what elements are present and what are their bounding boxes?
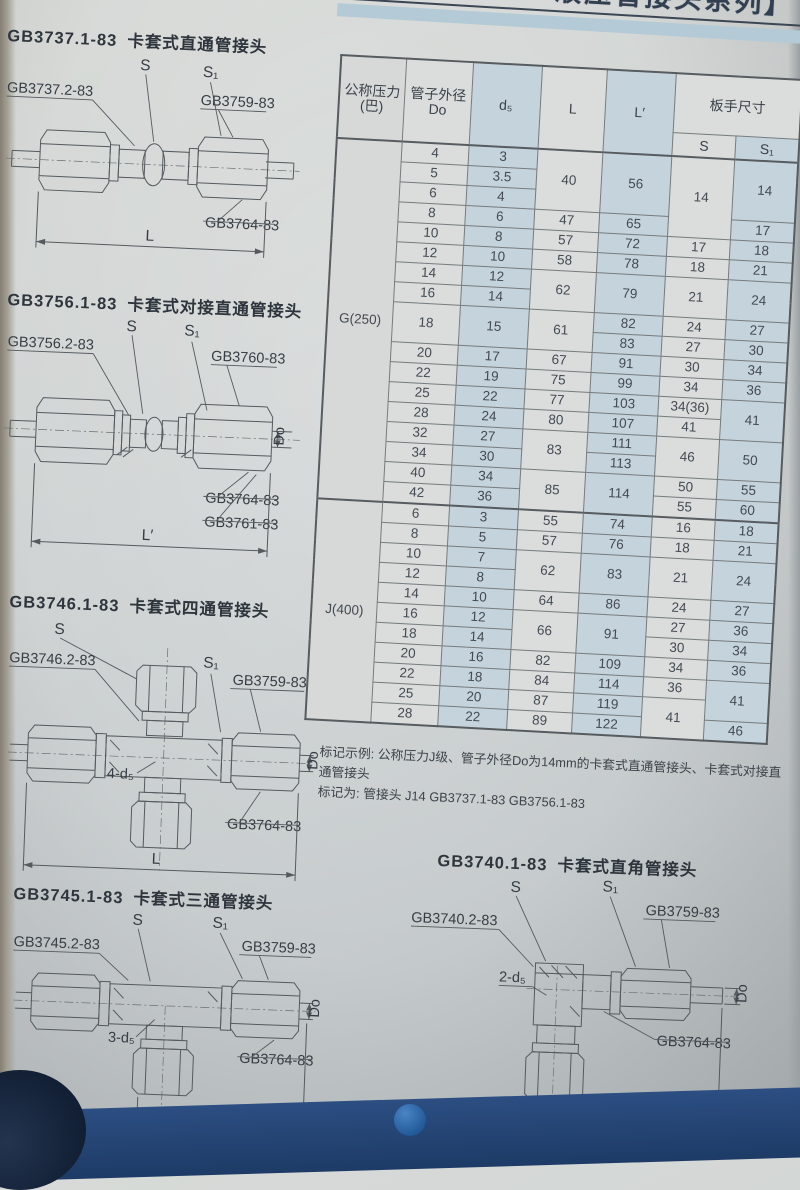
dim-s1-label: S₁ [212, 915, 228, 933]
diagram-cross-union: GB3746.1-83卡套式四通管接头 S GB3746.2-83 S₁ G [0, 588, 328, 890]
spec-cell: 21 [648, 557, 713, 600]
header-L: L [538, 66, 607, 152]
ferrule-part-label: GB3764-83 [239, 1051, 314, 1070]
dim-s1-label: S₁ [203, 654, 219, 672]
standard-code: GB3745.1-83 [13, 885, 124, 907]
spec-table-wrap: 公称压力(巴) 管子外径Do d₅ L L′ 板手尺寸 S S₁ G(250)4… [304, 54, 800, 745]
series-banner: 液压管接头系列】 [337, 0, 800, 44]
header-Lprime: L′ [603, 69, 676, 156]
bottom-blue-medallion [394, 1104, 426, 1136]
spec-cell: 61 [527, 309, 594, 352]
spec-cell: 22 [438, 706, 508, 730]
dim-do-label: Do [307, 999, 324, 1018]
straight-union-drawing: S S₁ GB3737.2-83 GB3759-83 GB3764-83 L [0, 46, 309, 279]
spec-cell: 24 [726, 280, 791, 323]
spec-cell: 14 [667, 156, 735, 240]
spec-cell: 83 [521, 429, 588, 472]
standard-code: GB3746.1-83 [9, 593, 120, 615]
dim-s-label: S [132, 912, 143, 929]
spec-cell: 122 [571, 713, 641, 737]
diagram-straight-union: GB3737.1-83卡套式直通管接头 S S₁ GB3737.2-83 GB3… [0, 22, 310, 279]
ferrule-part-label: GB3764-83 [205, 215, 280, 234]
standard-code: GB3756.1-83 [7, 291, 118, 314]
dim-lprime-label: L′ [141, 527, 153, 544]
header-wrench-size: 板手尺寸 [673, 73, 800, 139]
spec-cell: 41 [705, 680, 770, 723]
spec-cell: 91 [576, 613, 647, 657]
diagram-elbow-union: GB3740.1-83卡套式直角管接头 S S₁ GB3740.2-83 GB3… [402, 846, 784, 1130]
holes-label: 2-d₅ [499, 969, 527, 986]
header-d5: d₅ [469, 62, 542, 149]
spec-cell: 62 [529, 269, 596, 312]
header-S1: S₁ [735, 136, 799, 163]
spec-cell: 79 [594, 273, 665, 317]
spec-cell: 62 [514, 550, 581, 593]
holes-label: 4-d₅ [107, 766, 135, 783]
pressure-group-cell: J(400) [305, 498, 382, 722]
dim-l-label: L [145, 227, 155, 244]
spec-cell: 46 [704, 720, 768, 744]
spec-cell: 21 [663, 276, 728, 319]
dim-s-label: S [54, 621, 65, 638]
header-pressure: 公称压力(巴) [337, 55, 407, 141]
spec-cell: 56 [600, 152, 672, 216]
dim-s-label: S [510, 879, 521, 896]
spec-cell: 66 [511, 610, 578, 653]
marking-notes: 标记示例: 公称压力J级、管子外径Do为14mm的卡套式直通管接头、卡套式对接直… [317, 742, 791, 823]
ferrule-part-label: GB3764-83 [656, 1034, 731, 1053]
dim-s1-label: S₁ [203, 64, 219, 82]
spec-cell: 18 [391, 302, 460, 346]
spec-cell: 28 [371, 702, 439, 726]
spec-table-body: G(250)434056141453.564864765171085772171… [305, 138, 798, 744]
spec-cell: 46 [655, 436, 720, 479]
spec-cell: 50 [718, 440, 783, 483]
dim-do-label: Do [272, 427, 289, 446]
dim-s-label: S [126, 318, 137, 335]
header-outer-diameter: 管子外径Do [402, 59, 473, 146]
diagram-butt-union: GB3756.1-83卡套式对接直通管接头 Do GB3756.2-83 S S… [0, 286, 310, 570]
catalog-page-photo: { "banner": { "title": "液压管接头系列】" }, "di… [0, 0, 800, 1128]
standard-code: GB3737.1-83 [7, 27, 118, 50]
spec-cell: 41 [640, 697, 705, 741]
cross-union-drawing: S GB3746.2-83 S₁ GB3759-83 4-d₅ Do GB376… [0, 612, 327, 890]
spec-table: 公称压力(巴) 管子外径Do d₅ L L′ 板手尺寸 S S₁ G(250)4… [304, 54, 800, 745]
header-S: S [672, 133, 736, 160]
spec-cell: 40 [535, 149, 603, 213]
butt-union-drawing: Do GB3756.2-83 S S₁ GB3760-83 GB3764-83 … [0, 310, 309, 570]
spec-cell: 89 [507, 709, 573, 733]
dim-s1-label: S₁ [602, 878, 618, 896]
spec-cell: 85 [519, 469, 586, 513]
spec-cell: 14 [732, 159, 798, 223]
dim-s-label: S [140, 57, 151, 74]
dim-do-label: Do [734, 984, 751, 1003]
dim-s1-label: S₁ [184, 322, 200, 340]
ferrule-part-label: GB3764-83 [227, 817, 302, 836]
spec-cell: 15 [458, 305, 529, 349]
spec-cell: 114 [583, 472, 654, 516]
holes-label: 3-d₅ [108, 1030, 136, 1047]
spec-cell: 24 [711, 560, 776, 603]
spec-cell: 41 [720, 400, 785, 443]
standard-code: GB3740.1-83 [437, 852, 548, 874]
spec-cell: 83 [579, 553, 650, 597]
dim-l-label: L [151, 851, 161, 868]
